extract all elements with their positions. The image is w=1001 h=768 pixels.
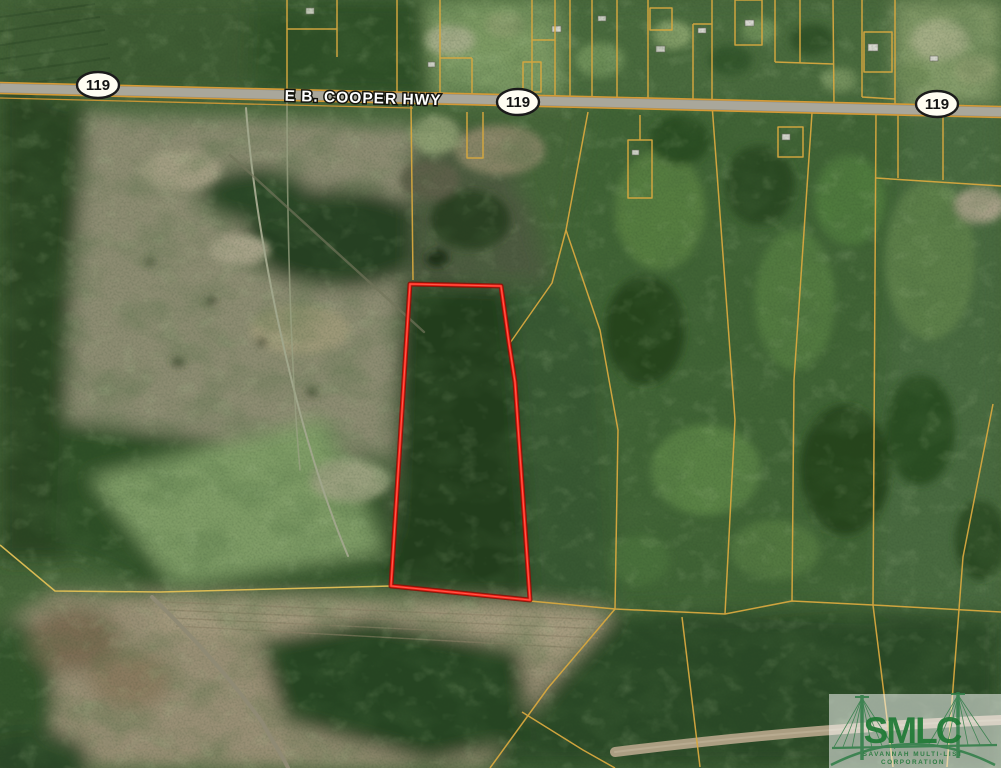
route-119-shield-middle: 119 [497,89,539,115]
route-number: 119 [86,77,110,94]
satellite-map-canvas: E B. COOPER HWY 119 119 119 [0,0,1001,768]
watermark-acronym: SMLC [864,710,962,751]
watermark-org-line2: CORPORATION [881,759,945,766]
smlc-watermark: SMLC SAVANNAH MULTI-LIST CORPORATION [829,692,1001,768]
parcel-map: E B. COOPER HWY 119 119 119 [0,0,1001,768]
watermark-org-line1: SAVANNAH MULTI-LIST [863,751,964,758]
satellite-terrain [0,0,1001,768]
fine-grain [0,0,1001,768]
route-119-shield-right: 119 [916,91,958,117]
route-number: 119 [506,94,530,111]
route-119-shield-left: 119 [77,72,119,98]
route-number: 119 [925,96,949,113]
